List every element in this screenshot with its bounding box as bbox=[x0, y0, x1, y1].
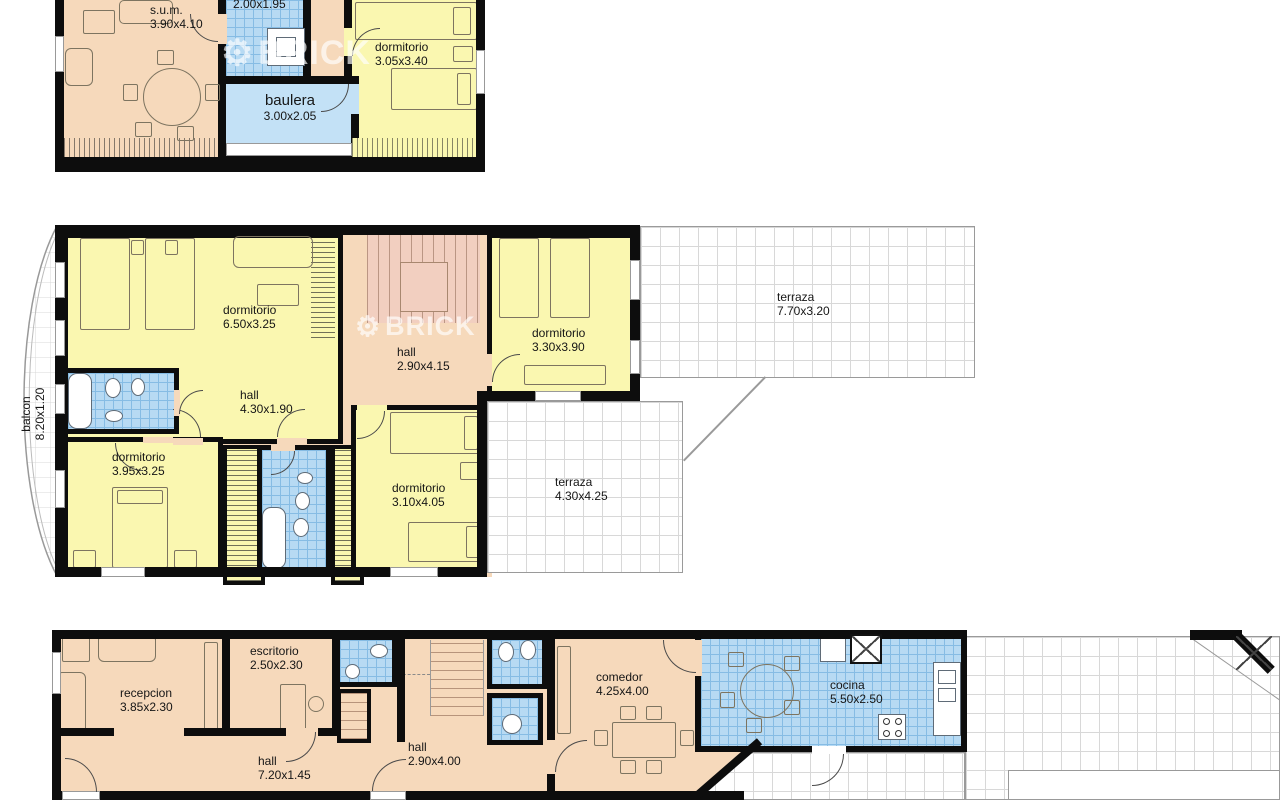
watermark-text: BRICK bbox=[258, 34, 371, 73]
floor-upper: s.u.m. 3.90x4.10 2.00x1.95 baulera 3.00x… bbox=[55, 0, 485, 172]
room-label-dorm-big: dormitorio 6.50x3.25 bbox=[223, 303, 276, 331]
room-dims: 3.85x2.30 bbox=[120, 700, 173, 714]
door-gap bbox=[277, 438, 307, 445]
door-gap bbox=[143, 437, 173, 443]
chair-icon bbox=[205, 84, 220, 101]
room-name: recepcion bbox=[120, 686, 173, 700]
window bbox=[55, 384, 65, 414]
floorplan-canvas: s.u.m. 3.90x4.10 2.00x1.95 baulera 3.00x… bbox=[0, 0, 1280, 800]
corner-closet-icon bbox=[1236, 636, 1272, 670]
chair-icon bbox=[646, 760, 662, 774]
chair-icon bbox=[135, 122, 152, 137]
burner-icon bbox=[883, 730, 890, 737]
pantry-icon bbox=[850, 634, 882, 664]
room-name: balcon bbox=[19, 368, 33, 460]
room-dims: 4.30x4.25 bbox=[555, 489, 608, 503]
room-toilet-1 bbox=[335, 635, 397, 687]
room-dims: 6.50x3.25 bbox=[223, 317, 276, 331]
door-gap bbox=[812, 746, 846, 754]
wall-left bbox=[55, 0, 64, 170]
chair-icon bbox=[620, 760, 636, 774]
stair-landing bbox=[400, 262, 448, 312]
wall-interior bbox=[184, 728, 230, 736]
bathtub-icon bbox=[262, 507, 286, 569]
pillow-icon bbox=[117, 490, 163, 504]
room-dims: 7.70x3.20 bbox=[777, 304, 830, 318]
bidet-icon bbox=[295, 492, 310, 510]
room-name: dormitorio bbox=[392, 481, 445, 495]
window bbox=[55, 320, 65, 356]
window bbox=[52, 652, 61, 694]
nightstand-icon bbox=[174, 550, 197, 568]
room-name: dormitorio bbox=[223, 303, 276, 317]
room-dims: 4.25x4.00 bbox=[596, 684, 649, 698]
chair-icon bbox=[157, 50, 174, 65]
room-name: baulera bbox=[240, 92, 340, 109]
staircase-main bbox=[430, 640, 484, 716]
chair-icon bbox=[308, 696, 324, 712]
wall-interior bbox=[397, 630, 405, 742]
room-label-sum: s.u.m. 3.90x4.10 bbox=[150, 3, 203, 31]
patio-inner-area bbox=[1008, 770, 1280, 800]
room-label-comedor: comedor 4.25x4.00 bbox=[596, 670, 649, 698]
room-dims: 4.30x1.90 bbox=[240, 402, 293, 416]
window-hatch-strip bbox=[352, 138, 476, 157]
room-dims: 3.00x2.05 bbox=[240, 109, 340, 123]
bathtub-icon bbox=[68, 373, 92, 429]
chair-icon bbox=[620, 706, 636, 720]
sink-icon bbox=[938, 688, 956, 702]
room-label-dorm-left: dormitorio 3.95x3.25 bbox=[112, 450, 165, 478]
room-label-hall-stairs: hall 2.90x4.00 bbox=[408, 740, 461, 768]
pillow-icon bbox=[131, 240, 144, 255]
pillow-icon bbox=[464, 416, 478, 450]
floor-ground: recepcion 3.85x2.30 escritorio 2.50x2.30… bbox=[40, 628, 1280, 800]
burner-icon bbox=[895, 730, 902, 737]
sink-icon bbox=[297, 472, 313, 484]
window bbox=[390, 567, 438, 577]
terrace-boundary-line bbox=[683, 376, 766, 461]
wall-top bbox=[55, 225, 640, 235]
staircase-small bbox=[337, 689, 371, 743]
room-dims: 3.90x4.10 bbox=[150, 17, 203, 31]
window bbox=[630, 260, 640, 300]
room-label-cocina: cocina 5.50x2.50 bbox=[830, 678, 883, 706]
cabinet-icon bbox=[557, 646, 571, 734]
chair-icon bbox=[720, 692, 735, 708]
entrance-door-gap bbox=[370, 791, 406, 800]
door-gap bbox=[173, 438, 203, 445]
bed-icon bbox=[550, 238, 590, 318]
chair-icon bbox=[123, 84, 138, 101]
toilet-icon bbox=[498, 642, 514, 662]
room-dims: 3.30x3.90 bbox=[532, 340, 585, 354]
bidet-icon bbox=[131, 378, 145, 396]
chair-icon bbox=[177, 126, 194, 141]
window bbox=[55, 36, 64, 72]
door-gap bbox=[547, 740, 555, 774]
brick-watermark: ⚙ BRICK bbox=[221, 32, 371, 74]
sink-icon bbox=[502, 714, 522, 734]
chair-icon bbox=[646, 706, 662, 720]
room-label-bath-upper: 2.00x1.95 bbox=[233, 0, 286, 11]
room-label-balcon: balcon 8.20x1.20 bbox=[19, 368, 51, 460]
wall-bottom bbox=[55, 157, 485, 172]
room-dims: 2.50x2.30 bbox=[250, 658, 303, 672]
pillow-icon bbox=[457, 73, 471, 105]
toilet-icon bbox=[293, 518, 309, 537]
room-label-stair-hall: hall 2.90x4.15 bbox=[397, 345, 450, 373]
room-name: cocina bbox=[830, 678, 883, 692]
chair-icon bbox=[680, 730, 694, 746]
wall-right-lower bbox=[477, 391, 487, 577]
room-dims: 5.50x2.50 bbox=[830, 692, 883, 706]
room-dims: 3.05x3.40 bbox=[375, 54, 428, 68]
gear-icon: ⚙ bbox=[221, 32, 254, 74]
armchair-icon bbox=[65, 48, 93, 86]
burner-icon bbox=[895, 718, 902, 725]
brick-watermark: ⚙ BRICK bbox=[355, 310, 476, 343]
bed-icon bbox=[499, 238, 539, 318]
nightstand-icon bbox=[73, 550, 96, 568]
room-label-hall: hall 4.30x1.90 bbox=[240, 388, 293, 416]
wall-interior bbox=[52, 728, 114, 736]
window bbox=[630, 340, 640, 374]
room-dims: 2.00x1.95 bbox=[233, 0, 286, 11]
window bbox=[55, 262, 65, 298]
sink-icon bbox=[105, 410, 123, 422]
entrance-door-gap bbox=[62, 791, 100, 800]
room-name: hall bbox=[397, 345, 450, 359]
room-label-baulera: baulera 3.00x2.05 bbox=[240, 92, 340, 123]
room-name: hall bbox=[408, 740, 461, 754]
room-name: comedor bbox=[596, 670, 649, 684]
room-label-recepcion: recepcion 3.85x2.30 bbox=[120, 686, 173, 714]
chair-icon bbox=[594, 730, 608, 746]
chair-icon bbox=[728, 652, 744, 667]
burner-icon bbox=[883, 718, 890, 725]
cabinet-icon bbox=[204, 642, 218, 730]
toilet-icon bbox=[370, 644, 388, 658]
window bbox=[101, 567, 145, 577]
window bbox=[476, 50, 485, 94]
armchair-icon bbox=[62, 636, 90, 662]
chair-icon bbox=[784, 700, 800, 715]
bed-icon bbox=[80, 238, 130, 330]
wall-interior bbox=[332, 630, 340, 736]
room-dims: 2.90x4.15 bbox=[397, 359, 450, 373]
room-name: terraza bbox=[777, 290, 830, 304]
closet-hatch bbox=[311, 238, 335, 338]
room-dims: 8.20x1.20 bbox=[33, 368, 47, 460]
round-table-icon bbox=[143, 68, 201, 126]
room-name: hall bbox=[258, 754, 311, 768]
room-name: dormitorio bbox=[112, 450, 165, 464]
room-toilet-2 bbox=[487, 635, 547, 689]
room-label-hall-long: hall 7.20x1.45 bbox=[258, 754, 311, 782]
sink-icon bbox=[345, 664, 360, 679]
sink-icon bbox=[938, 670, 956, 684]
chair-icon bbox=[784, 656, 800, 671]
room-label-escritorio: escritorio 2.50x2.30 bbox=[250, 644, 303, 672]
window-hatch-strip bbox=[64, 138, 218, 157]
room-name: dormitorio bbox=[375, 40, 428, 54]
room-label-terraza-small: terraza 4.30x4.25 bbox=[555, 475, 608, 503]
room-dims: 3.95x3.25 bbox=[112, 464, 165, 478]
wall-top bbox=[52, 630, 967, 639]
dining-table-icon bbox=[612, 722, 676, 758]
dresser-icon bbox=[524, 365, 606, 385]
sofa-icon bbox=[233, 236, 313, 268]
side-table-icon bbox=[83, 10, 115, 34]
room-name: s.u.m. bbox=[150, 3, 203, 17]
room-dims: 7.20x1.45 bbox=[258, 768, 311, 782]
watermark-text: BRICK bbox=[385, 311, 476, 342]
window bbox=[535, 391, 581, 401]
room-name: dormitorio bbox=[532, 326, 585, 340]
pillow-icon bbox=[453, 7, 471, 35]
stove-icon bbox=[878, 714, 906, 740]
desk-icon bbox=[280, 684, 306, 730]
wall-interior bbox=[228, 728, 286, 736]
wall-right-upper bbox=[630, 225, 640, 401]
chair-icon bbox=[746, 718, 762, 733]
room-label-terraza-large: terraza 7.70x3.20 bbox=[777, 290, 830, 318]
room-label-dorm-right: dormitorio 3.30x3.90 bbox=[532, 326, 585, 354]
door-gap bbox=[695, 640, 702, 676]
room-name: terraza bbox=[555, 475, 608, 489]
wall-interior bbox=[318, 728, 340, 736]
window bbox=[55, 470, 65, 508]
window bbox=[226, 143, 352, 156]
floor-middle: balcon 8.20x1.20 bbox=[5, 222, 980, 580]
room-dims: 2.90x4.00 bbox=[408, 754, 461, 768]
bidet-icon bbox=[520, 640, 536, 660]
room-name: hall bbox=[240, 388, 293, 402]
room-label-dorm-center: dormitorio 3.10x4.05 bbox=[392, 481, 445, 509]
nightstand-icon bbox=[453, 46, 473, 62]
room-name: escritorio bbox=[250, 644, 303, 658]
wall-interior bbox=[222, 630, 230, 736]
door-gap bbox=[351, 84, 359, 114]
toilet-icon bbox=[105, 378, 121, 398]
fridge-icon bbox=[820, 638, 846, 662]
room-label-dormitorio-upper: dormitorio 3.05x3.40 bbox=[375, 40, 428, 68]
room-dims: 3.10x4.05 bbox=[392, 495, 445, 509]
pillow-icon bbox=[165, 240, 178, 255]
gear-icon: ⚙ bbox=[355, 310, 381, 343]
